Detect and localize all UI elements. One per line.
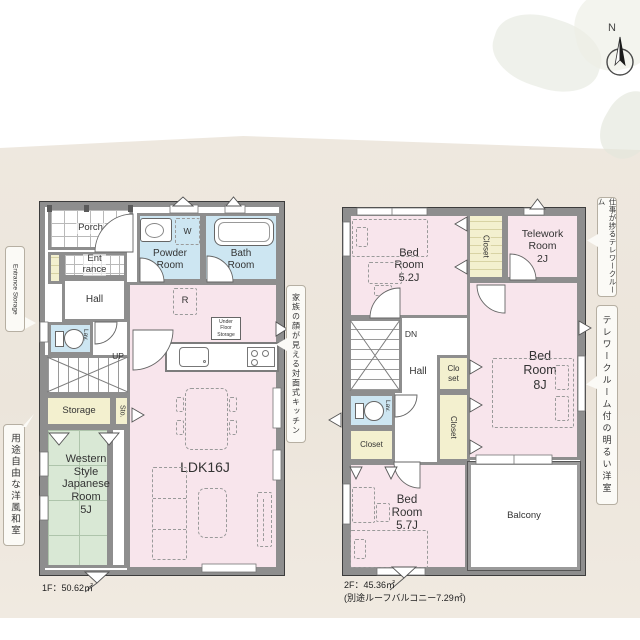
note-text: Entrance Storage [12,264,19,315]
floor2-area-label: 2F：45.36㎡ [344,579,466,592]
ldk-door-arc [133,330,173,370]
window [273,388,281,428]
window [343,222,350,256]
porch-post [128,205,133,212]
bed57-door-arc [394,462,420,488]
closet-marker-triangle [470,440,482,454]
closet-marker-triangle [470,360,482,374]
closet-marker-triangle [470,398,482,412]
bed52-door-arc [370,288,400,318]
window [40,322,48,342]
note-entrance-storage: Entrance Storage [5,246,25,332]
closet-marker-triangle [455,260,467,274]
floor2-area-sub-label: (別途ルーフバルコニー7.29㎡) [344,592,466,605]
note-western-room: 用途自由な洋風和室 [3,424,25,546]
note-text: 仕事が捗るテレワークルーム [596,198,618,296]
compass-icon [597,22,640,88]
floor1-linework [40,202,284,575]
bath-door-arc [207,256,233,282]
lav2-door-arc [395,395,417,417]
closet-marker-triangle [49,433,69,445]
floor2-linework [343,208,585,575]
stair-diagonals [350,320,400,391]
window [343,484,350,524]
floor1-plan: Porch Entrance Hall Lav. UP Storage Sto.… [40,202,284,575]
closet-marker-triangle [385,467,397,479]
window [40,452,48,476]
floor2-plan: Bed Room 5.2J Closet Telework Room 2J Be… [343,208,585,575]
closet-marker-triangle [99,433,119,445]
porch-post [84,205,89,212]
bed8-door-arc [477,285,505,313]
closet-marker-triangle [455,217,467,231]
note-text: 家族の顔が見える対面式キッチン [291,293,302,436]
telework-door-arc [510,254,536,280]
lav-door-arc [95,322,117,344]
stair-diagonals [47,357,128,392]
note-telework: 仕事が捗るテレワークルーム [597,197,617,297]
window [40,496,48,520]
note-text: 用途自由な洋風和室 [7,433,21,537]
window [202,564,256,572]
floor1-area-label: 1F：50.62㎡ [42,582,93,595]
porch-post [47,205,52,212]
compass: N [597,22,640,88]
window [273,450,281,480]
vent-triangle [132,408,144,422]
powder-door-arc [140,258,164,282]
front-door-arc [95,214,133,252]
window-ticks [392,208,514,575]
note-text: テレワークルーム付の明るい洋室 [601,315,614,495]
closet-marker-triangle [350,467,362,479]
note-bedroom: テレワークルーム付の明るい洋室 [596,305,618,505]
window [578,356,585,411]
floor2-area-labels: 2F：45.36㎡ (別途ルーフバルコニー7.29㎡) [344,579,466,605]
note-kitchen: 家族の顔が見える対面式キッチン [286,285,306,443]
